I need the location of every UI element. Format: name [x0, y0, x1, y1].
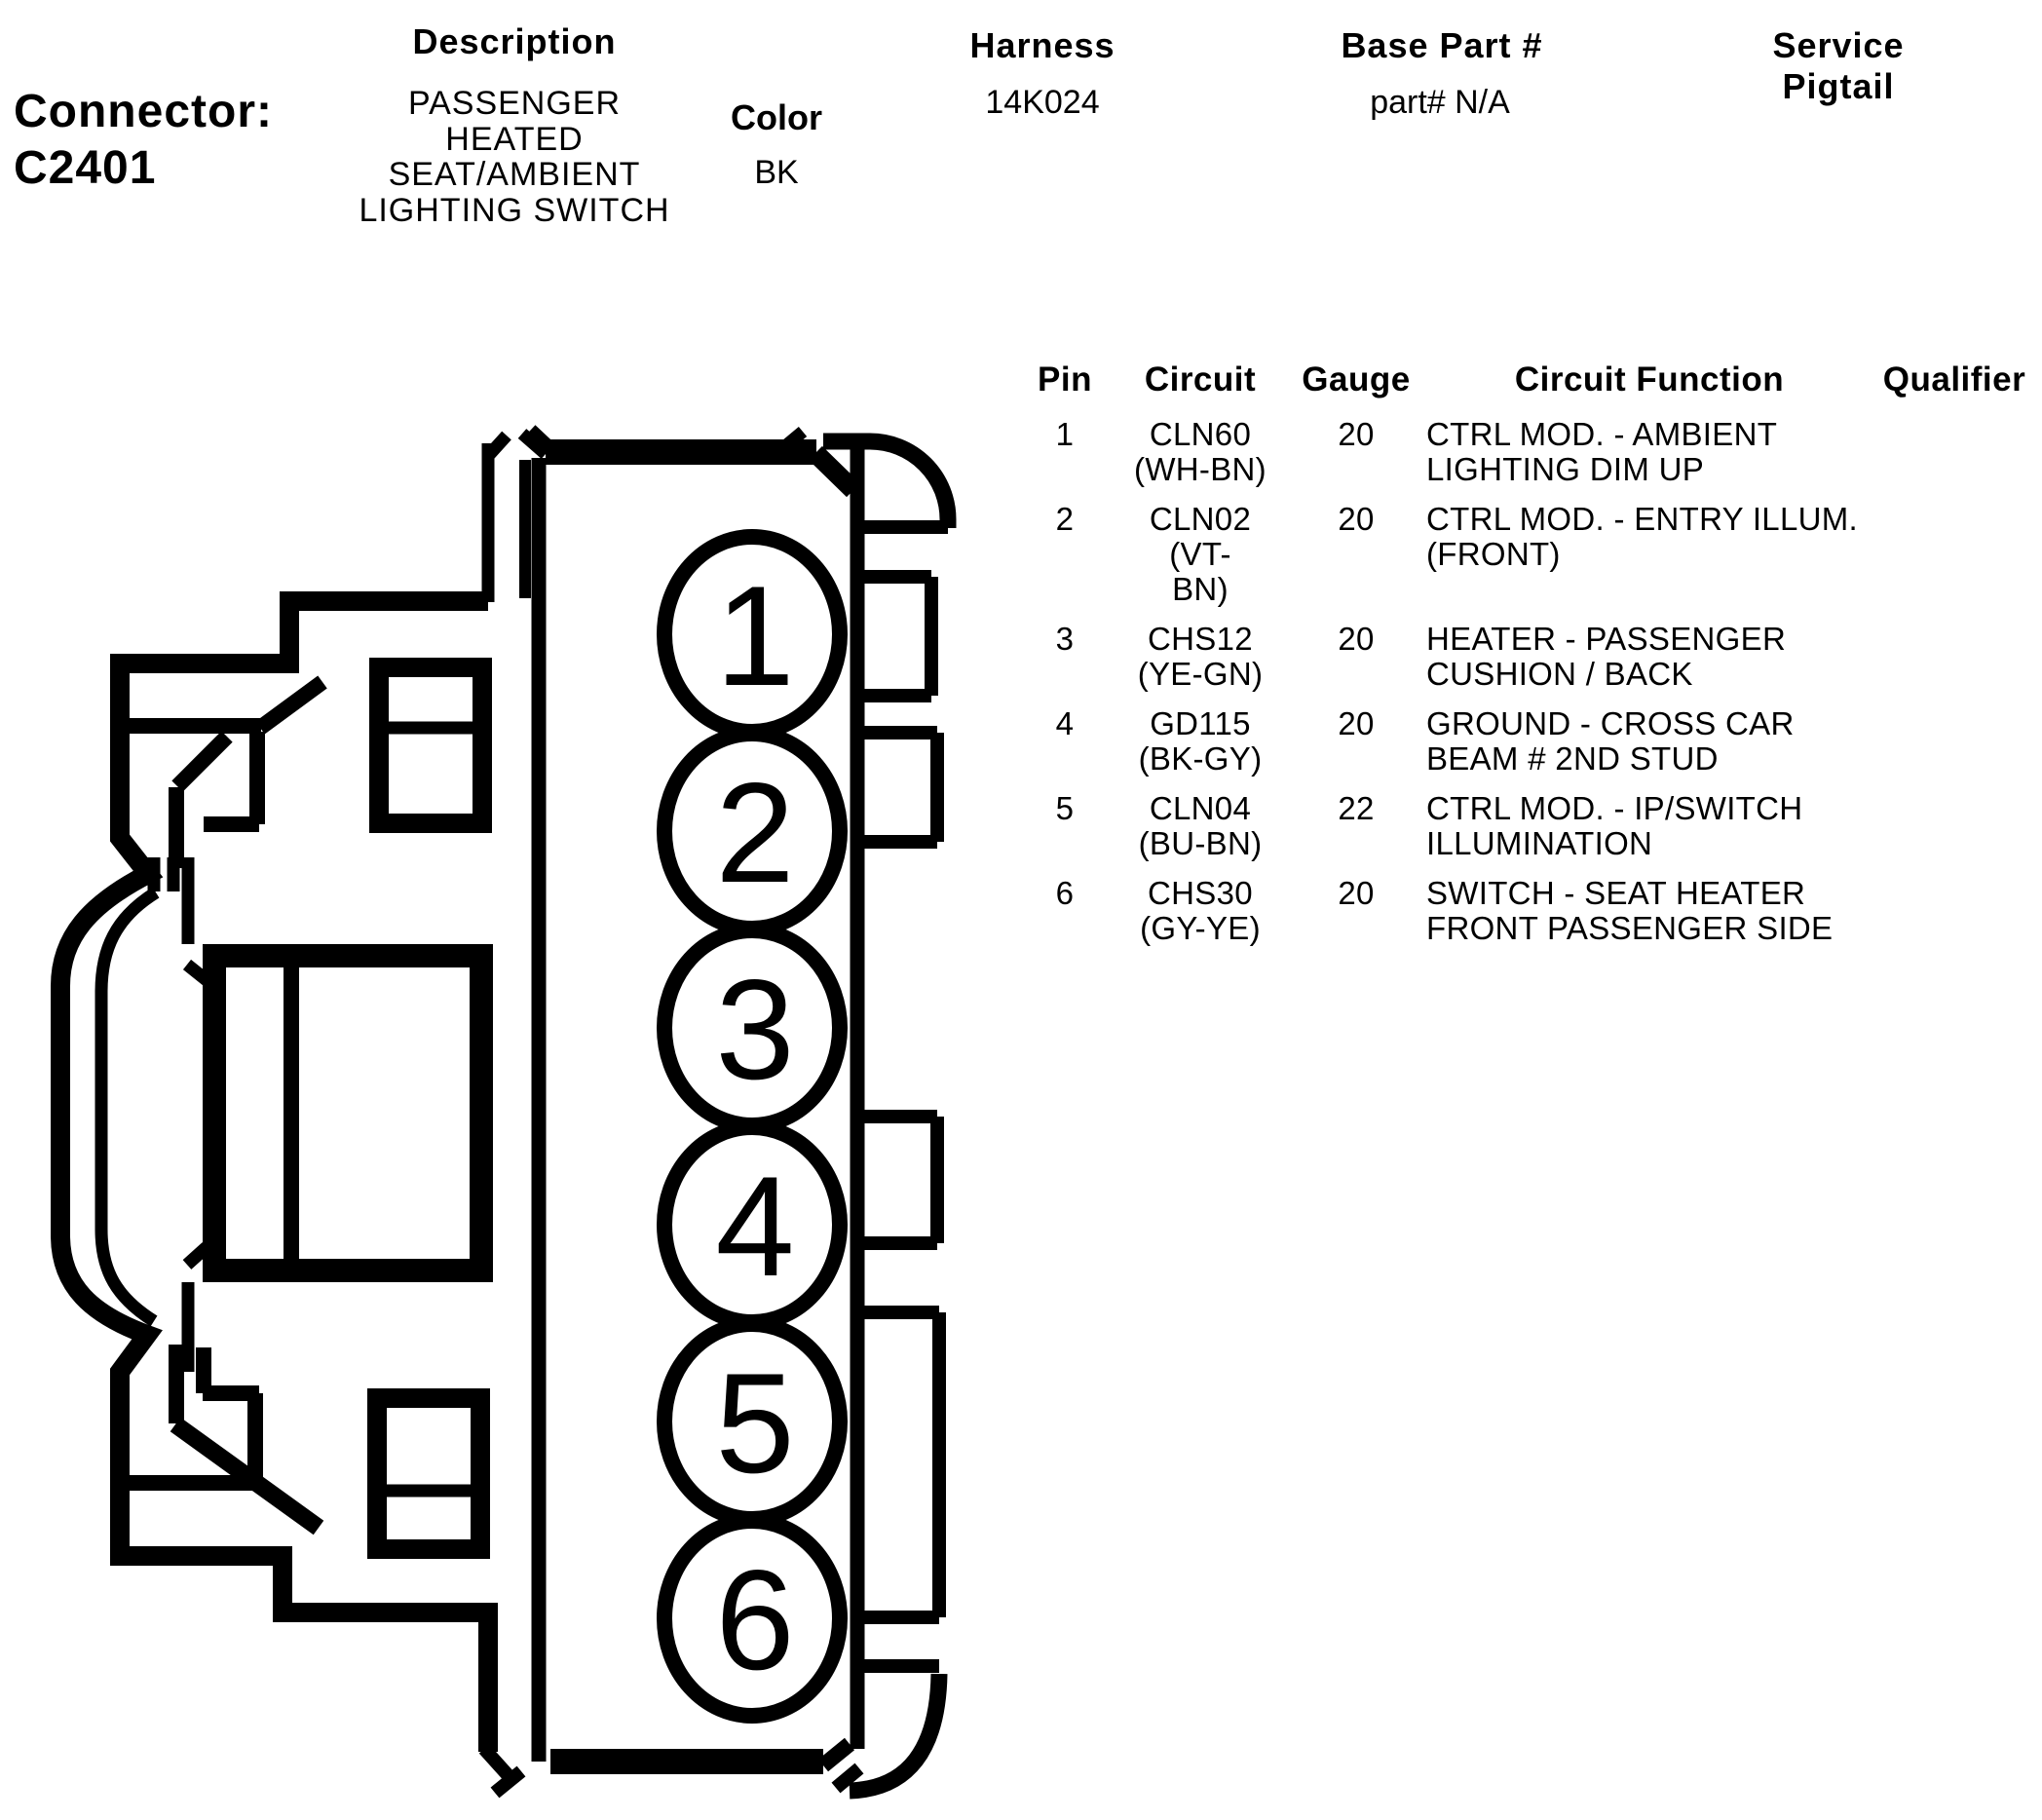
- color-value: BK: [754, 154, 798, 192]
- cell-circuit-function: CTRL MOD. - IP/SWITCH ILLUMINATION: [1426, 791, 1872, 861]
- upper-latch-diag2: [260, 682, 322, 728]
- pin-table: Pin Circuit Gauge Circuit Function Quali…: [1015, 362, 2036, 961]
- pin-cavity-group: 123456: [664, 537, 840, 1716]
- pin-number: 1: [715, 556, 794, 715]
- cell-gauge: 20: [1286, 622, 1426, 692]
- cell-pin: 2: [1015, 502, 1115, 607]
- cell-qualifier: [1872, 706, 2036, 777]
- cell-gauge: 20: [1286, 417, 1426, 487]
- pin-cavity-1: 1: [664, 537, 840, 732]
- cell-circuit: CHS12 (YE-GN): [1115, 622, 1286, 692]
- cell-gauge: 22: [1286, 791, 1426, 861]
- upper-latch-diag1: [177, 737, 227, 786]
- tab-d: [864, 1312, 939, 1617]
- cell-circuit: CHS30 (GY-YE): [1115, 876, 1286, 946]
- strip-top-tick: [488, 436, 507, 456]
- connector-title-label: Connector:: [14, 84, 273, 140]
- cell-circuit-function: SWITCH - SEAT HEATER FRONT PASSENGER SID…: [1426, 876, 1872, 946]
- pin-number: 4: [715, 1147, 794, 1306]
- cell-circuit: CLN04 (BU-BN): [1115, 791, 1286, 861]
- col-header-circuit: Circuit: [1115, 362, 1286, 398]
- cell-circuit-function: HEATER - PASSENGER CUSHION / BACK: [1426, 622, 1872, 692]
- table-row: 4 GD115 (BK-GY) 20 GROUND - CROSS CAR BE…: [1015, 706, 2036, 777]
- housing-outline: [60, 601, 488, 1752]
- pin-table-header: Pin Circuit Gauge Circuit Function Quali…: [1015, 362, 2036, 398]
- cell-qualifier: [1872, 502, 2036, 607]
- base-part-header: Base Part #: [1341, 25, 1542, 66]
- cell-pin: 5: [1015, 791, 1115, 861]
- bottom-right-diag: [823, 1744, 850, 1765]
- cell-gauge: 20: [1286, 706, 1426, 777]
- pin-number: 6: [715, 1540, 794, 1699]
- harness-value: 14K024: [985, 84, 1099, 122]
- pin-cavity-2: 2: [664, 734, 840, 929]
- cell-pin: 1: [1015, 417, 1115, 487]
- strip-foot-tick-left: [484, 1749, 510, 1778]
- pin-cavity-4: 4: [664, 1127, 840, 1322]
- cell-pin: 3: [1015, 622, 1115, 692]
- base-part-value: part# N/A: [1370, 84, 1510, 122]
- table-row: 1 CLN60 (WH-BN) 20 CTRL MOD. - AMBIENT L…: [1015, 417, 2036, 487]
- pin-cavity-3: 3: [664, 930, 840, 1125]
- pin-number: 2: [715, 753, 794, 912]
- cell-gauge: 20: [1286, 876, 1426, 946]
- pin-cavity-5: 5: [664, 1324, 840, 1519]
- cell-circuit: CLN02 (VT- BN): [1115, 502, 1286, 607]
- connector-id: C2401: [14, 140, 273, 197]
- cell-circuit: CLN60 (WH-BN): [1115, 417, 1286, 487]
- connector-title: Connector: C2401: [14, 84, 273, 197]
- cell-qualifier: [1872, 417, 2036, 487]
- table-row: 2 CLN02 (VT- BN) 20 CTRL MOD. - ENTRY IL…: [1015, 502, 2036, 607]
- cell-qualifier: [1872, 791, 2036, 861]
- description-value: PASSENGER HEATED SEAT/AMBIENT LIGHTING S…: [359, 86, 669, 228]
- cell-qualifier: [1872, 622, 2036, 692]
- cell-circuit-function: GROUND - CROSS CAR BEAM # 2ND STUD: [1426, 706, 1872, 777]
- pin-number: 3: [715, 950, 794, 1109]
- table-row: 5 CLN04 (BU-BN) 22 CTRL MOD. - IP/SWITCH…: [1015, 791, 2036, 861]
- cell-qualifier: [1872, 876, 2036, 946]
- protrusion-inner: [101, 892, 156, 1321]
- pin-cavity-6: 6: [664, 1521, 840, 1716]
- description-header: Description: [412, 21, 616, 62]
- lower-cavity: [377, 1398, 480, 1549]
- table-rows: 1 CLN60 (WH-BN) 20 CTRL MOD. - AMBIENT L…: [1015, 417, 2036, 946]
- connector-diagram: 123456: [29, 409, 984, 1820]
- cell-circuit: GD115 (BK-GY): [1115, 706, 1286, 777]
- col-header-qualifier: Qualifier: [1872, 362, 2036, 398]
- central-cavity: [214, 956, 481, 1270]
- cell-circuit-function: CTRL MOD. - ENTRY ILLUM. (FRONT): [1426, 502, 1872, 607]
- table-row: 3 CHS12 (YE-GN) 20 HEATER - PASSENGER CU…: [1015, 622, 2036, 692]
- cell-gauge: 20: [1286, 502, 1426, 607]
- tab-c: [864, 1117, 937, 1243]
- cell-circuit-function: CTRL MOD. - AMBIENT LIGHTING DIM UP: [1426, 417, 1872, 487]
- top-right-diag: [815, 453, 853, 490]
- col-header-circuit-function: Circuit Function: [1426, 362, 1872, 398]
- table-row: 6 CHS30 (GY-YE) 20 SWITCH - SEAT HEATER …: [1015, 876, 2036, 946]
- harness-header: Harness: [969, 25, 1115, 66]
- col-header-gauge: Gauge: [1286, 362, 1426, 398]
- tab-b: [864, 733, 937, 842]
- pin-number: 5: [715, 1344, 794, 1502]
- color-header: Color: [731, 97, 822, 138]
- tab-a: [864, 577, 931, 696]
- service-pigtail-header: Service Pigtail: [1737, 25, 1941, 107]
- cell-pin: 4: [1015, 706, 1115, 777]
- upper-cavity: [379, 667, 482, 823]
- col-header-pin: Pin: [1015, 362, 1115, 398]
- cell-pin: 6: [1015, 876, 1115, 946]
